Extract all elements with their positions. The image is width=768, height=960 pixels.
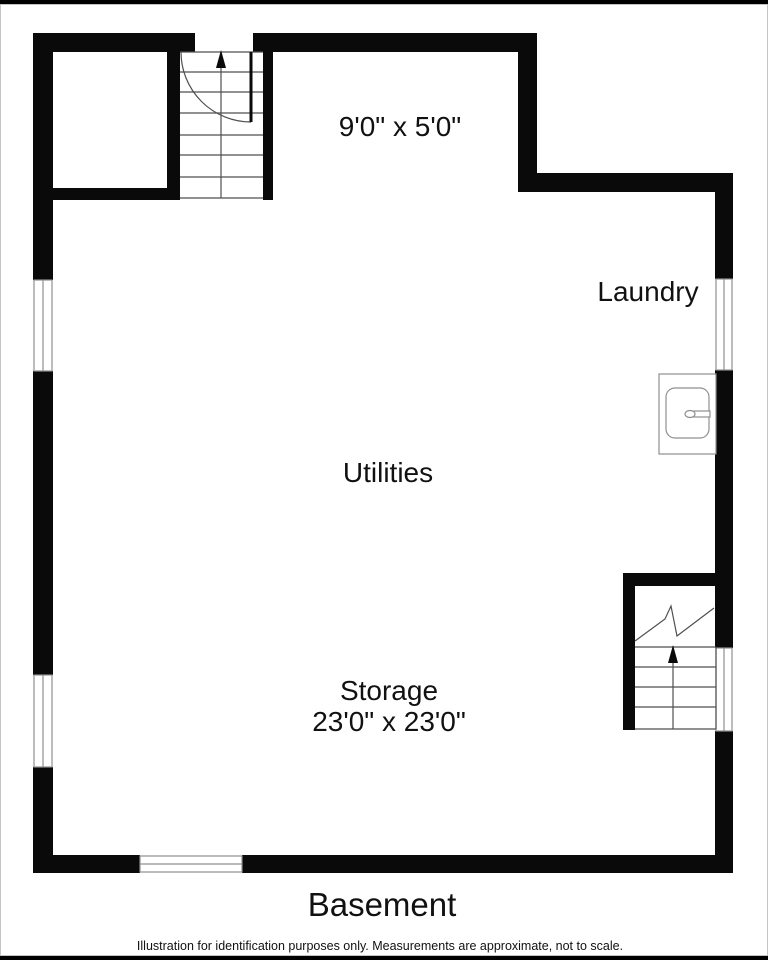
wall-step-vertical bbox=[518, 52, 537, 192]
stair-break-line-icon bbox=[635, 606, 714, 641]
up-arrow-bottom-icon bbox=[668, 645, 678, 663]
frame-bar-bottom bbox=[0, 956, 768, 960]
wall-right-upper bbox=[715, 192, 733, 279]
storage-name: Storage bbox=[312, 675, 466, 706]
wall-bottom-right bbox=[242, 855, 733, 873]
wall-right-lower bbox=[715, 731, 733, 855]
up-arrow-top-icon bbox=[216, 50, 226, 68]
room-label-storage: Storage 23'0" x 23'0" bbox=[312, 675, 466, 737]
window-right-upper-icon bbox=[716, 279, 732, 370]
wall-left-middle bbox=[33, 371, 53, 675]
walls bbox=[33, 33, 733, 873]
staircase-bottom-right-icon bbox=[635, 606, 716, 729]
sink-faucet-handle bbox=[685, 411, 695, 418]
disclaimer-text: Illustration for identification purposes… bbox=[137, 939, 623, 953]
window-bottom-icon bbox=[140, 856, 242, 872]
wall-right-middle bbox=[715, 370, 733, 648]
wall-left-upper bbox=[33, 52, 53, 280]
wall-left-lower bbox=[33, 767, 53, 855]
room-label-laundry: Laundry bbox=[597, 276, 698, 307]
wall-top-left bbox=[33, 33, 195, 52]
plan-title: Basement bbox=[308, 886, 457, 924]
door-swing-arc-icon bbox=[181, 52, 251, 122]
wall-closet-bottom bbox=[53, 188, 167, 200]
window-left-upper-icon bbox=[34, 280, 52, 371]
wall-step-horizontal bbox=[518, 173, 733, 192]
wall-stairwell-top bbox=[623, 573, 717, 586]
frame-bar-top bbox=[0, 0, 768, 4]
floor-plan-canvas: 9'0" x 5'0" Laundry Utilities Storage 23… bbox=[0, 0, 768, 960]
wall-closet-right bbox=[167, 52, 180, 200]
sink-faucet-arm bbox=[694, 411, 710, 417]
wall-stairwell-left bbox=[623, 586, 635, 730]
wall-top-right bbox=[253, 33, 537, 52]
window-left-lower-icon bbox=[34, 675, 52, 767]
laundry-sink-icon bbox=[659, 374, 716, 454]
storage-dimensions: 23'0" x 23'0" bbox=[312, 706, 466, 737]
window-right-lower-icon bbox=[716, 648, 732, 731]
wall-bottom-left bbox=[33, 855, 140, 873]
room-dimensions-top: 9'0" x 5'0" bbox=[339, 111, 461, 142]
room-label-utilities: Utilities bbox=[343, 457, 433, 488]
wall-stair-divider-top bbox=[263, 52, 273, 200]
